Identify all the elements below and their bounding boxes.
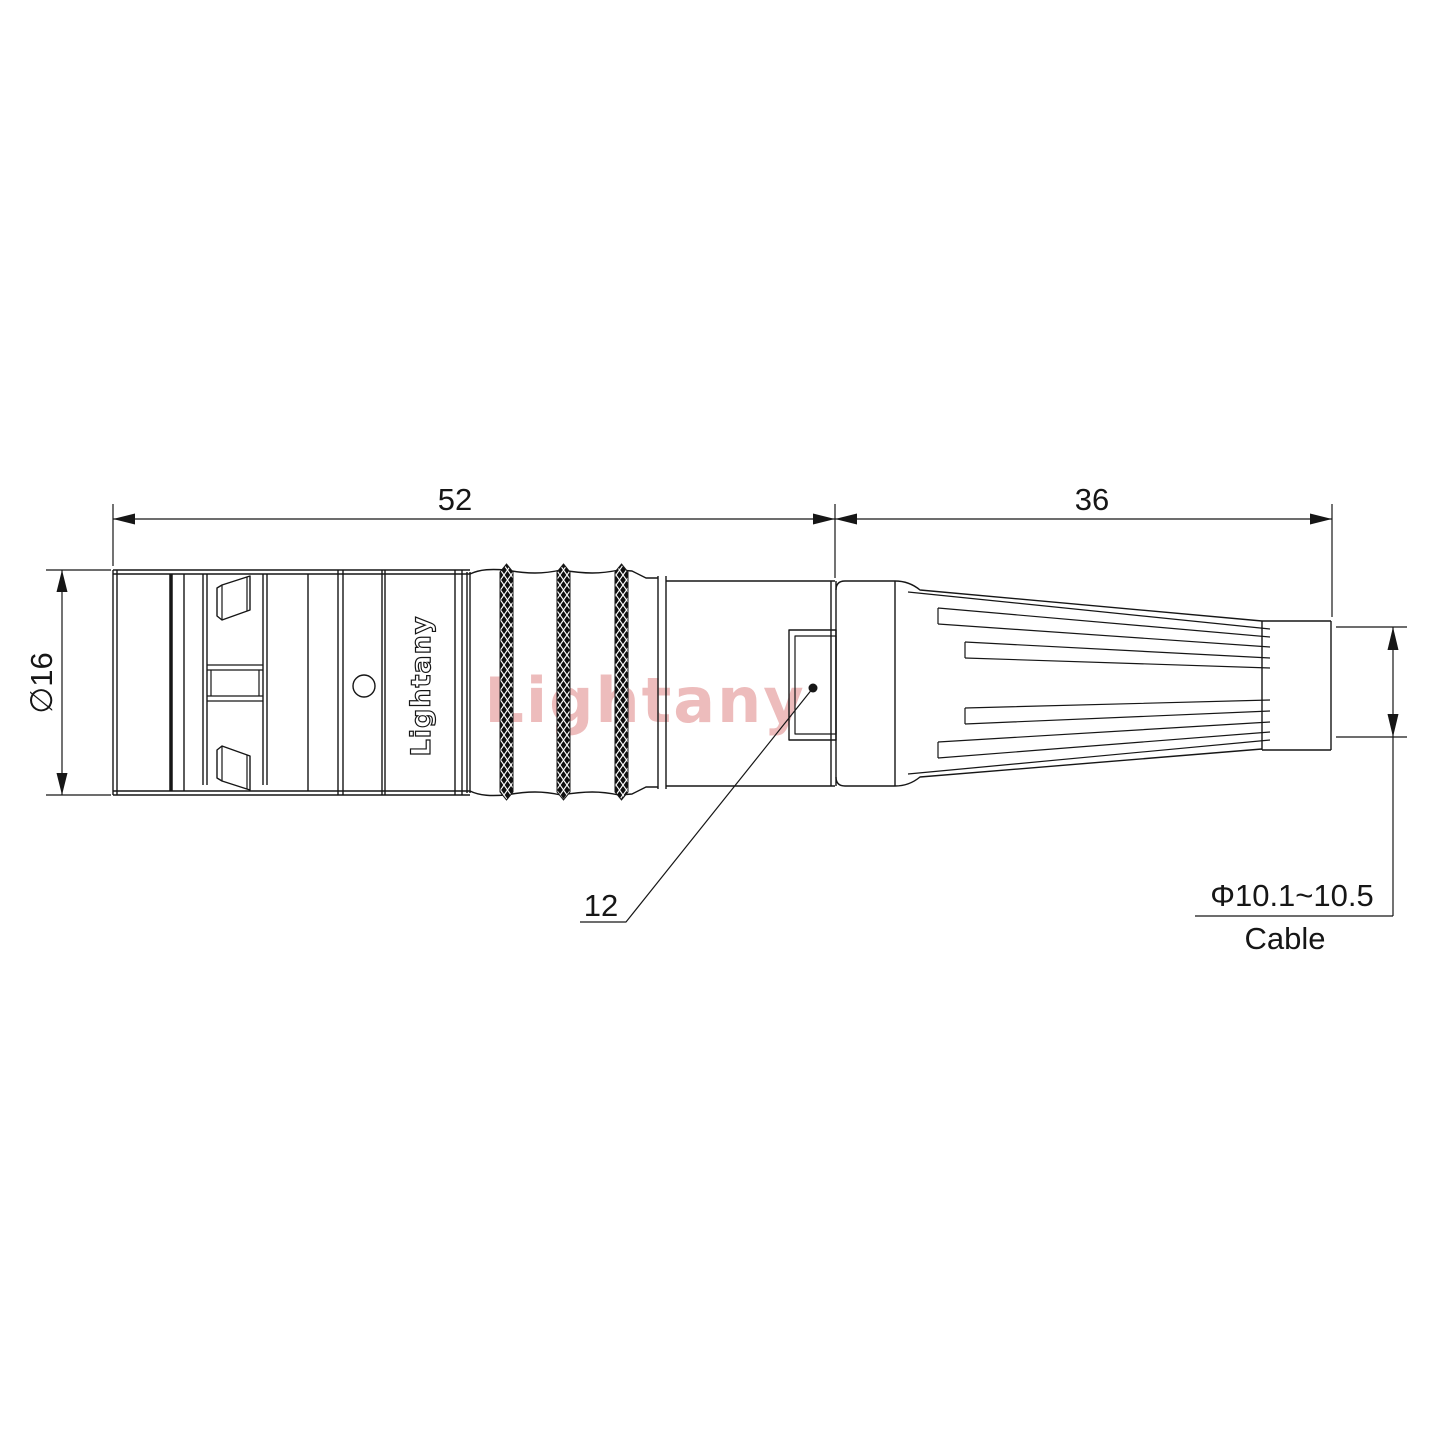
- engraving-text: Lightany: [406, 616, 437, 757]
- collar-bands: Lightany: [338, 570, 470, 795]
- latch-key-bottom: [217, 746, 250, 790]
- front-top-edge: [113, 570, 470, 574]
- cable-diameter-value: Φ10.1~10.5: [1210, 878, 1374, 913]
- dimension-front-length: 52: [113, 482, 835, 578]
- latch-key-top: [217, 576, 250, 620]
- boot-top-edge: [895, 581, 1262, 621]
- boot-cap: [836, 581, 895, 786]
- knurl-band-3: [615, 564, 628, 800]
- cable-arrow-top: [1388, 627, 1399, 650]
- cable-end-ring: [1262, 621, 1331, 750]
- front-face: [113, 570, 117, 795]
- knurl-band-1: [500, 564, 513, 800]
- release-hole: [353, 675, 375, 697]
- dim36-value: 36: [1075, 482, 1109, 517]
- dimension-front-diameter: ∅16: [24, 570, 111, 795]
- marking-band-edges: [455, 570, 470, 795]
- knurl-band-2: [557, 564, 570, 800]
- boot: [836, 581, 1331, 786]
- dim52-value: 52: [438, 482, 472, 517]
- nut-flat-value: 12: [584, 888, 618, 923]
- ring-band-edges: [338, 570, 385, 795]
- cable-label: Cable: [1245, 921, 1326, 956]
- dim36-arrow-right: [1310, 514, 1332, 525]
- dia16-arrow-bottom: [57, 773, 68, 795]
- front-bottom-edge: [113, 791, 470, 795]
- dim52-arrow-right: [813, 514, 835, 525]
- boot-bottom-edge: [895, 749, 1262, 786]
- technical-drawing-page: Lightany Lightany: [0, 0, 1440, 1440]
- latch-center-slot: [207, 665, 263, 701]
- dim36-arrow-left: [835, 514, 857, 525]
- dim52-extension-lines: [113, 504, 835, 578]
- rear-body-face: [831, 581, 836, 786]
- boot-ribs: [908, 592, 1270, 774]
- dimension-boot-length: 36: [835, 482, 1332, 617]
- cable-arrow-bottom: [1388, 714, 1399, 737]
- connector-drawing: Lightany Lightany: [0, 0, 1440, 1440]
- dia16-arrow-top: [57, 570, 68, 592]
- watermark-text: Lightany: [484, 664, 805, 737]
- dimension-cable: Φ10.1~10.5 Cable: [1195, 627, 1407, 956]
- dia16-value: ∅16: [24, 652, 59, 714]
- cable-dim-leader: [1195, 627, 1393, 916]
- dim52-arrow-left: [113, 514, 135, 525]
- boot-rib-ends: [938, 608, 965, 758]
